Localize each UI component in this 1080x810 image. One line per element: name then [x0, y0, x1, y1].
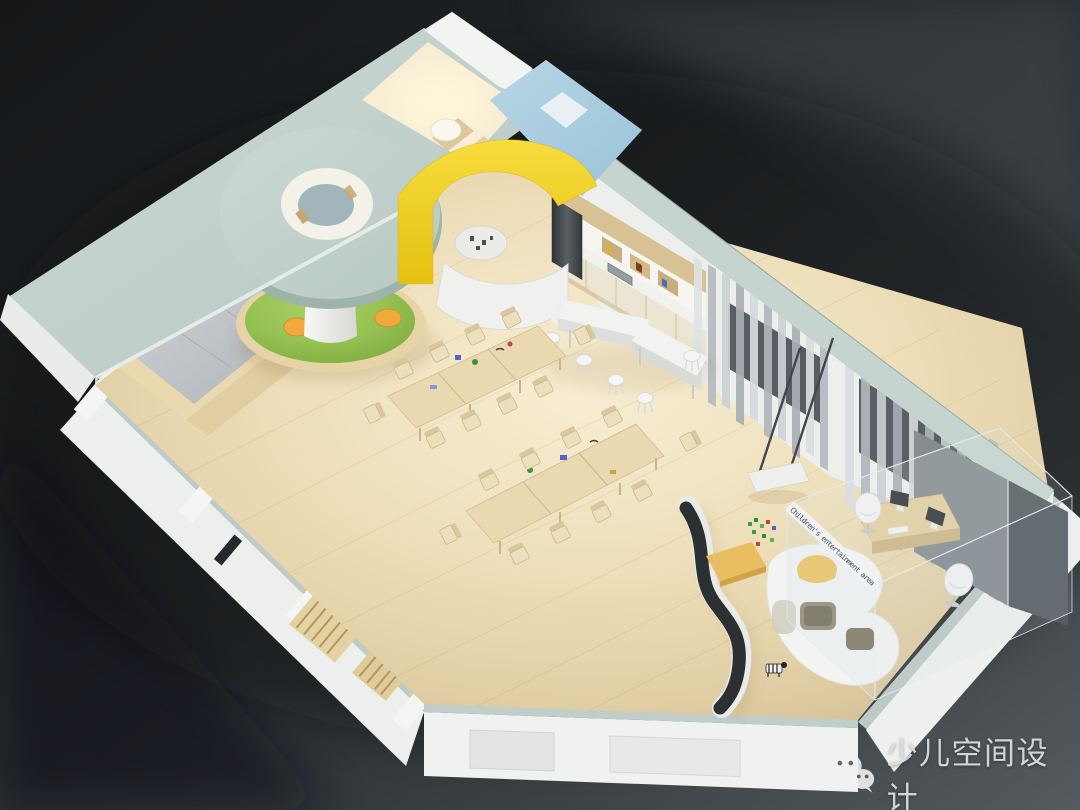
interior-render-svg: Children's entertainment area [0, 0, 1080, 810]
wechat-icon [826, 749, 880, 797]
render-stage: Children's entertainment area 少儿空间设计 [0, 0, 1080, 810]
watermark-text: 少儿空间设计 [887, 728, 1080, 810]
round-display-table [455, 226, 507, 260]
alcove-arch [431, 119, 461, 141]
orange-cushion-right [375, 309, 401, 327]
watermark: 少儿空间设计 [826, 728, 1080, 810]
